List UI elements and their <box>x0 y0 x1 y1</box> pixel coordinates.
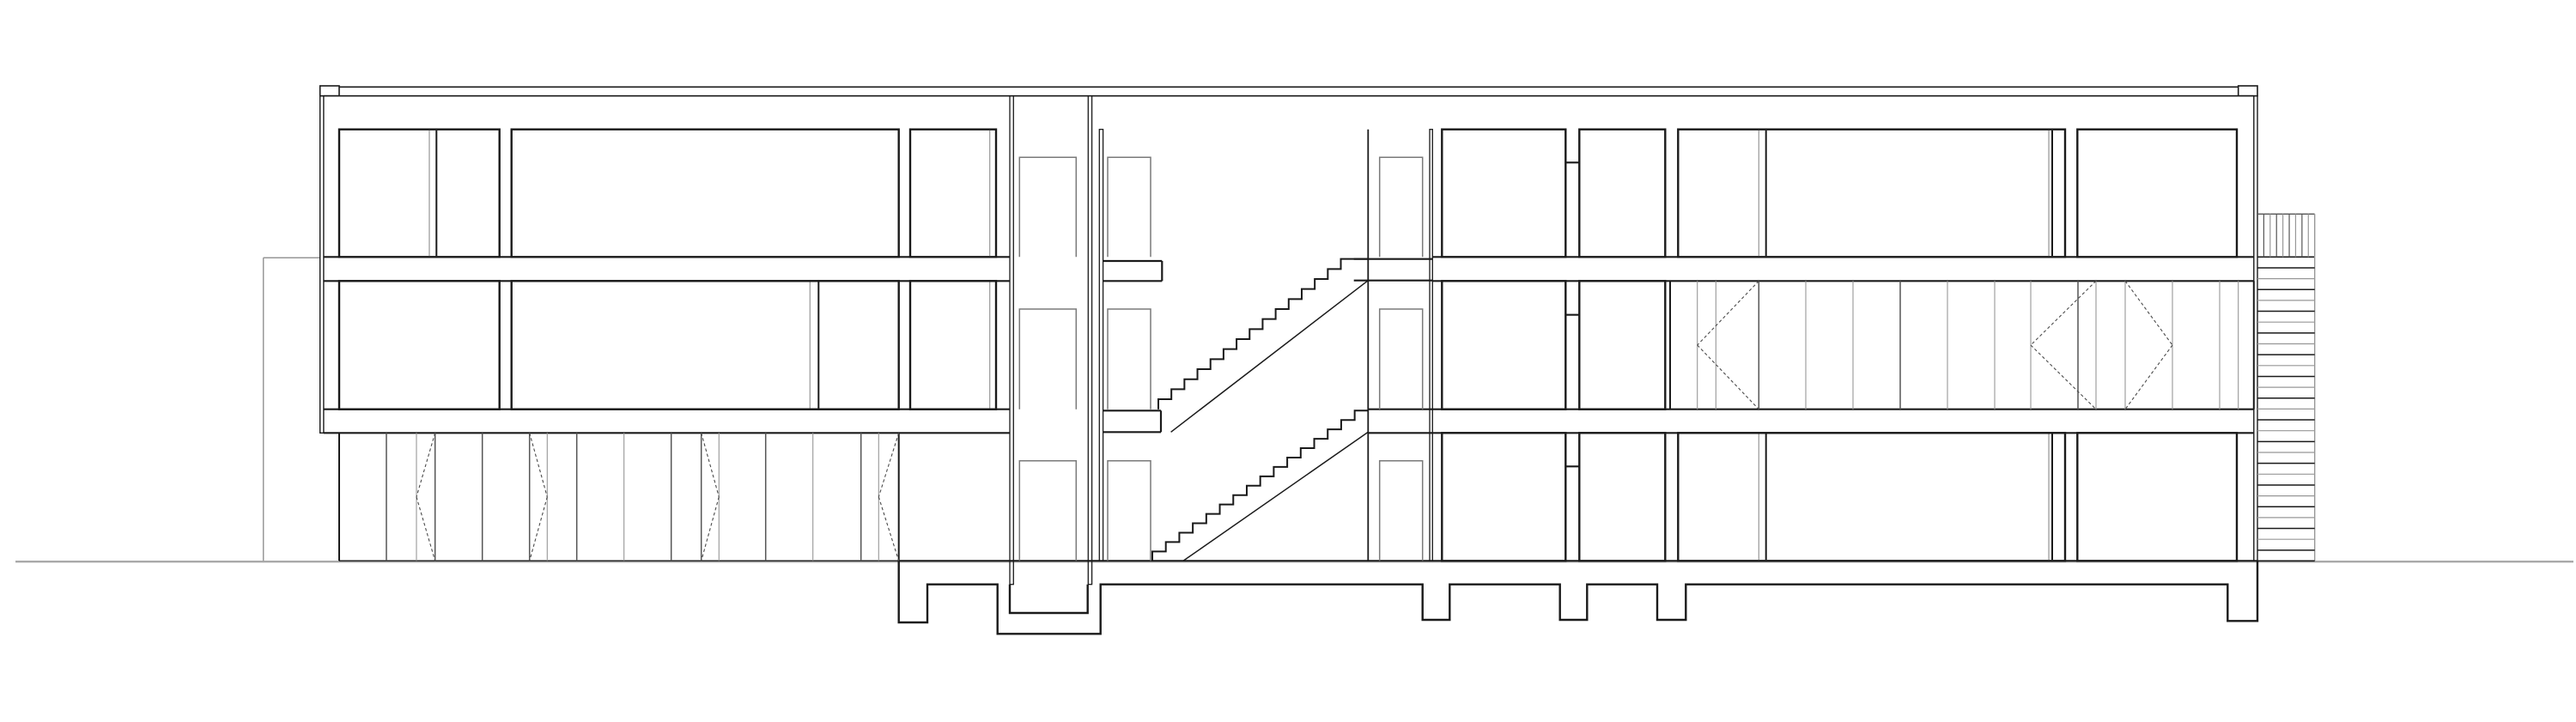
ground-floor-glazing-left-door-swing-2 <box>530 433 548 497</box>
stair-flight-lower-soffit <box>1183 432 1368 561</box>
stairhall-left-door-l3 <box>1108 157 1151 257</box>
middle-floor-glazing-right-door-swing-2 <box>2031 281 2096 345</box>
stairhall-outer-wall <box>1430 130 1432 561</box>
stair-flight-upper <box>1158 259 1368 410</box>
ground-floor-glazing-left-door-swing-3 <box>702 433 720 497</box>
window-row-ground-box-2 <box>1579 433 1665 561</box>
exterior-ladder <box>2257 214 2315 561</box>
window-row-upper-box-3 <box>910 130 996 258</box>
stairhall-right-door-l1 <box>1380 461 1423 561</box>
stairs <box>1152 259 1368 561</box>
stairhall-left-door-l1 <box>1108 461 1151 561</box>
parapet-left <box>320 86 339 96</box>
window-row-middle-box-4 <box>1442 281 1565 409</box>
stairhall-left-wall <box>1099 130 1103 561</box>
stairhall-right-door-l3 <box>1380 157 1423 257</box>
elevator-door-l1 <box>1019 461 1076 561</box>
middle-floor-glazing-right-door-swing-3 <box>2125 281 2172 345</box>
window-row-upper-box-5 <box>1579 130 1665 258</box>
roof <box>320 86 2257 96</box>
elevator-shaft-left-wall <box>1010 96 1013 585</box>
annex-volume <box>264 258 320 561</box>
window-row-upper-box-7 <box>2077 130 2237 258</box>
window-row-upper-box-6 <box>1678 130 2065 258</box>
elevator-shaft-right-wall <box>1088 96 1091 585</box>
window-row-upper-box-2 <box>512 130 899 258</box>
stairhall-right-door-l2 <box>1380 309 1423 410</box>
window-row-middle-box-3 <box>910 281 996 409</box>
stair-flight-lower <box>1152 410 1368 561</box>
window-row-middle-box-1 <box>339 281 500 409</box>
elevator-door-l2 <box>1019 309 1076 410</box>
parapet-right <box>2239 86 2257 96</box>
left-outer-wall <box>320 96 324 434</box>
window-row-middle-box-2 <box>512 281 899 409</box>
middle-floor-glazing-right-door-swing-1 <box>1698 281 1759 345</box>
window-row-ground-box-1 <box>1442 433 1565 561</box>
foundation-profile <box>899 561 2257 634</box>
window-row-upper-box-4 <box>1442 130 1565 258</box>
page <box>0 0 2576 722</box>
elevator-pit-inner <box>1010 585 1088 613</box>
window-row-ground-box-4 <box>2077 433 2237 561</box>
stair-flight-upper-soffit <box>1171 281 1369 433</box>
ground-floor-glazing-left-door-swing-1 <box>416 433 435 497</box>
window-row-middle-box-5 <box>1579 281 1665 409</box>
elevator-door-l3 <box>1019 157 1076 257</box>
window-row-ground-box-3 <box>1678 433 2065 561</box>
stairhall-left-door-l2 <box>1108 309 1151 410</box>
building-section-drawing <box>0 0 2576 722</box>
ground-floor-glazing-left-door-swing-4 <box>878 433 898 497</box>
foundation <box>339 561 2257 634</box>
window-row-upper-box-1 <box>339 130 500 258</box>
